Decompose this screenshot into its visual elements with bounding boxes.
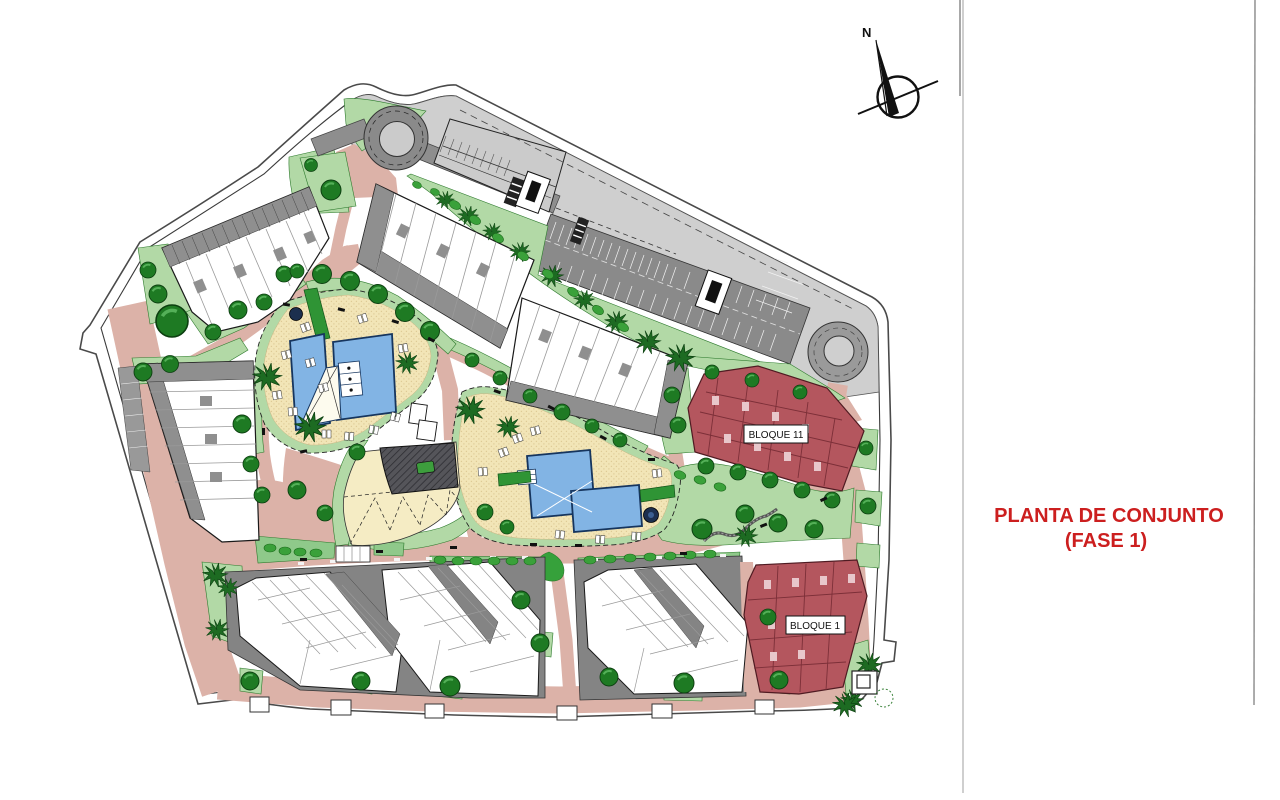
svg-text:BLOQUE 11: BLOQUE 11 — [749, 430, 804, 441]
svg-text:N: N — [862, 25, 871, 40]
svg-text:(FASE 1): (FASE 1) — [1065, 530, 1147, 552]
svg-text:PLANTA DE CONJUNTO: PLANTA DE CONJUNTO — [994, 505, 1224, 527]
svg-text:BLOQUE 1: BLOQUE 1 — [790, 621, 840, 632]
